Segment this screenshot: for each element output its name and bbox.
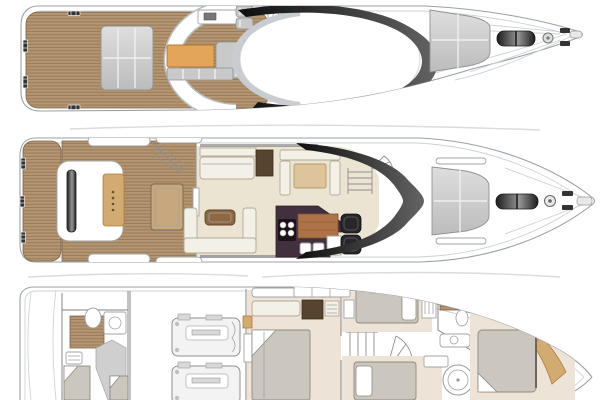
engine: [172, 314, 240, 356]
galley-counter: [298, 214, 338, 238]
vanity: [424, 356, 448, 367]
crew-berth: [110, 376, 128, 400]
anchor-winch-icon: [545, 196, 556, 207]
crew-toilet: [85, 308, 101, 328]
deck-main: [20, 134, 595, 266]
master-sofa: [252, 301, 300, 316]
crew-sink: [66, 352, 82, 364]
deck-separator-line: [28, 273, 560, 278]
crew-berth: [64, 366, 90, 400]
crew-shower: [104, 312, 126, 334]
coffee-table: [205, 210, 235, 225]
gunwale-pad: [156, 257, 202, 266]
deck-hatch: [370, 284, 410, 293]
dinette-table: [294, 164, 326, 188]
deck-flybridge: [21, 5, 582, 116]
guest-cabin-port: [342, 289, 436, 332]
deck-hatch: [504, 295, 534, 304]
bow-cleat: [562, 205, 573, 210]
dinette: [280, 150, 340, 195]
saloon-port-sofa: [200, 157, 254, 179]
bow-cleat: [560, 28, 570, 33]
yacht-deck-plans: [0, 0, 600, 400]
saloon-sideboard: [200, 148, 256, 156]
bow-roller: [570, 31, 582, 38]
bow-roller: [577, 197, 592, 205]
foredeck-sunpad: [430, 10, 490, 72]
transom-sunbed: [57, 161, 124, 241]
cockpit-table: [151, 184, 183, 230]
shower-teak-floor: [440, 296, 458, 310]
gunwale-pad: [156, 134, 202, 143]
vip-bed: [478, 330, 536, 392]
engine: [172, 362, 240, 400]
flybridge-aft-sunpad: [101, 26, 153, 90]
deck-separator-line: [70, 125, 540, 130]
teak-step: [243, 316, 252, 328]
master-bed: [252, 330, 310, 400]
bow-cleat: [562, 191, 573, 196]
deck-hatch: [470, 287, 496, 295]
guest-bed: [354, 362, 416, 400]
swim-platform: [23, 141, 61, 261]
master-cabin: [243, 288, 341, 400]
toilet: [456, 310, 468, 326]
master-dresser: [325, 301, 339, 316]
tv-cabinet: [256, 150, 273, 176]
flybridge-orange-sunpad: [167, 45, 214, 67]
vip-cabin: [470, 287, 575, 400]
bow-cleat: [560, 41, 570, 46]
master-cabinet: [302, 300, 323, 319]
nightstand: [244, 334, 252, 362]
hob: [278, 219, 296, 241]
guest-bed: [356, 289, 418, 323]
side-table: [344, 300, 354, 318]
deck-lower: [20, 284, 596, 400]
anchor-winch-icon: [543, 33, 553, 43]
